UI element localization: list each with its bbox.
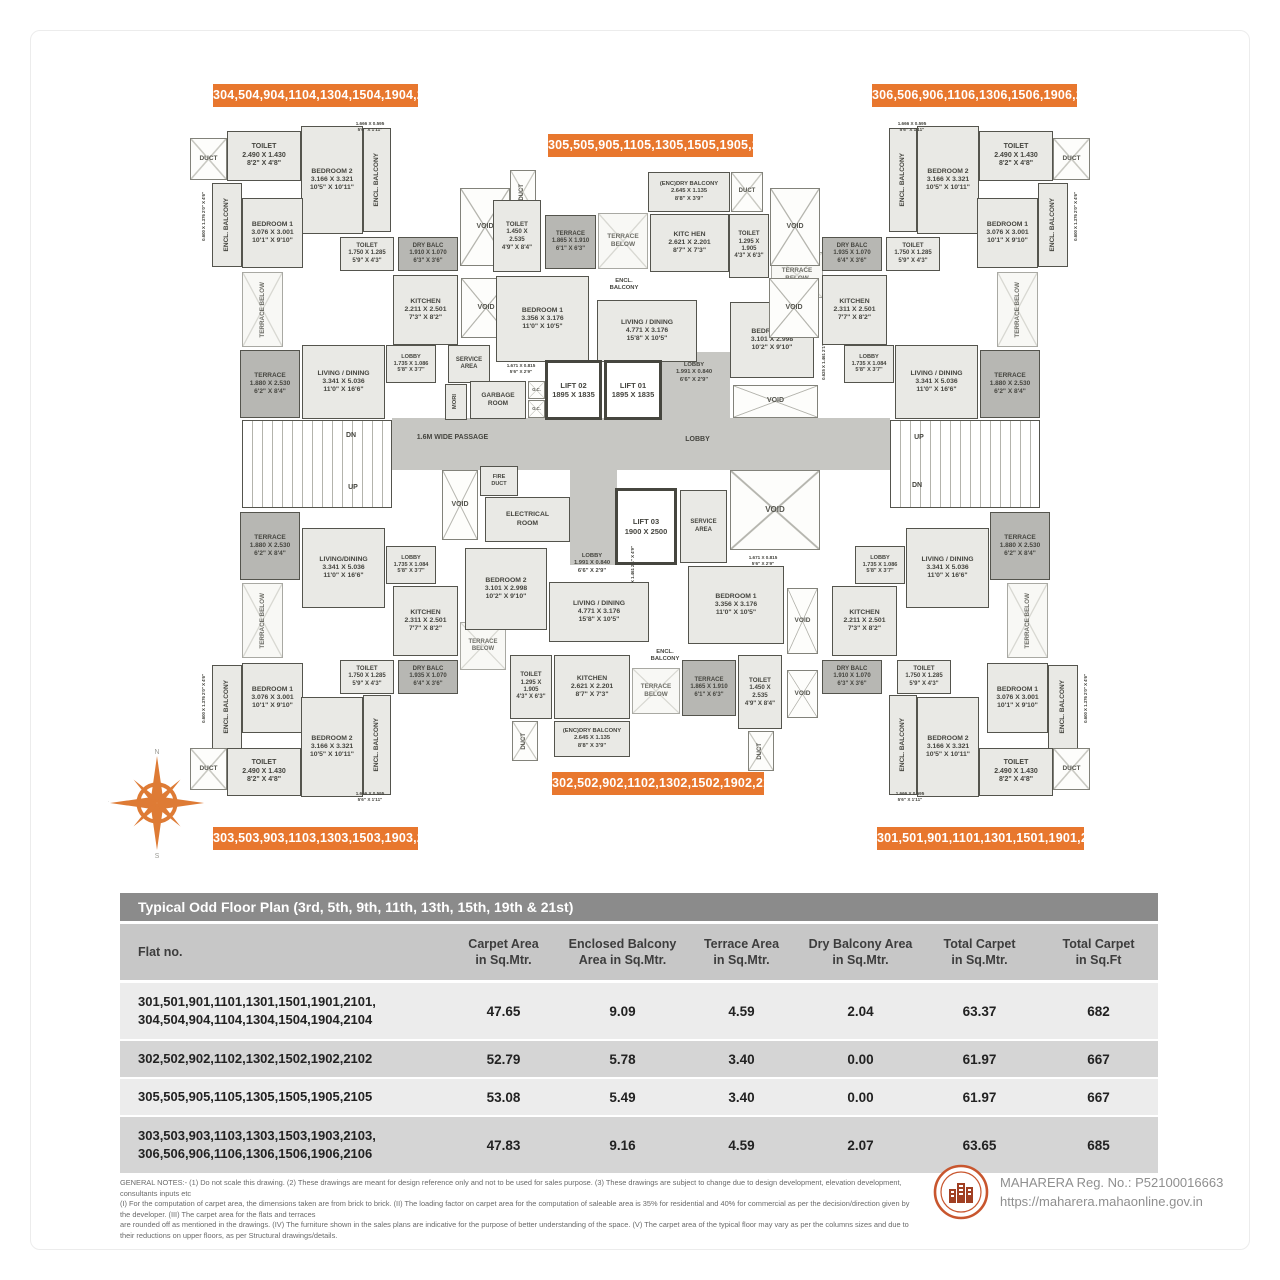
plan-room: DUCT <box>731 172 763 212</box>
maharera-seal-icon <box>932 1163 990 1221</box>
plan-room: BEDROOM 13.076 X 3.00110'1" X 9'10" <box>242 198 303 268</box>
plan-room: BEDROOM 23.166 X 3.32110'5" X 10'11" <box>301 126 363 234</box>
plan-room: LIVING / DINING3.341 X 5.03611'0" X 16'6… <box>906 528 989 608</box>
plan-room: TOILET2.490 X 1.4308'2" X 4'8" <box>979 748 1053 796</box>
plan-room: (ENC)DRY BALCONY2.645 X 1.1358'8" X 3'9" <box>554 721 630 757</box>
plan-room: TERRACE BELOW <box>242 272 283 347</box>
plan-room: TOILET1.750 X 1.2855'9" X 4'3" <box>340 237 394 271</box>
plan-room: KITCHEN2.211 X 2.5017'3" X 8'2" <box>832 586 897 656</box>
plan-room: ENCL. BALCONY <box>889 695 917 795</box>
plan-label: 1.6M WIDE PASSAGE <box>390 430 515 446</box>
plan-room: DUCT <box>748 731 774 771</box>
plan-room: BEDROOM 13.076 X 3.00110'1" X 9'10" <box>242 663 303 733</box>
note-line: (I) For the computation of carpet area, … <box>120 1199 915 1220</box>
area-value-cell: 9.16 <box>563 1117 682 1173</box>
area-value-cell: 4.59 <box>682 983 801 1039</box>
plan-room: ENCL. BALCONY <box>889 128 917 232</box>
flat-number-banner: 303,503,903,1103,1303,1503,1903,2103 <box>213 827 418 850</box>
plan-room: ENCL. BALCONY <box>1038 183 1068 267</box>
plan-room: ENCL. BALCONY <box>1048 665 1078 749</box>
area-value-cell: 3.40 <box>682 1079 801 1115</box>
plan-label: DN <box>338 430 364 443</box>
plan-room: ENCL. BALCONY <box>212 665 242 749</box>
plan-label: ENCL.BALCONY <box>600 274 648 296</box>
plan-room: BEDROOM 23.101 X 2.99810'2" X 9'10" <box>465 548 547 630</box>
area-value-cell: 61.97 <box>920 1079 1039 1115</box>
flat-number-banner: 305,505,905,1105,1305,1505,1905,2105 <box>548 134 753 157</box>
plan-room: LIFT 031900 X 2500 <box>615 488 677 565</box>
plan-label: LOBBY1.991 X 0.8406'6" X 2'9" <box>560 546 624 582</box>
table-row: 305,505,905,1105,1305,1505,1905,210553.0… <box>120 1079 1158 1115</box>
plan-room: FIREDUCT <box>480 466 518 496</box>
plan-room: VOID <box>770 188 820 266</box>
plan-room: VOID <box>769 278 819 338</box>
table-body: 301,501,901,1101,1301,1501,1901,2101,304… <box>120 983 1158 1173</box>
area-value-cell: 52.79 <box>444 1041 563 1077</box>
rera-url: https://maharera.mahaonline.gov.in <box>1000 1192 1223 1211</box>
plan-room: TERRACE1.880 X 2.5306'2" X 8'4" <box>980 350 1040 418</box>
area-value-cell: 0.00 <box>801 1041 920 1077</box>
area-value-cell: 667 <box>1039 1041 1158 1077</box>
plan-room: ENCL. BALCONY <box>363 695 391 795</box>
plan-room <box>242 420 392 508</box>
plan-room: MORI <box>445 384 467 420</box>
area-value-cell: 47.83 <box>444 1117 563 1173</box>
svg-text:S: S <box>155 853 160 858</box>
flat-number-banner: 306,506,906,1106,1306,1506,1906,2106 <box>872 84 1077 107</box>
area-value-cell: 682 <box>1039 983 1158 1039</box>
area-value-cell: 63.37 <box>920 983 1039 1039</box>
plan-room: LOBBY1.735 X 1.0845'8" X 3'7" <box>844 345 894 383</box>
plan-room: LIVING / DINING4.771 X 3.17615'8" X 10'5… <box>549 582 649 642</box>
table-row: 301,501,901,1101,1301,1501,1901,2101,304… <box>120 983 1158 1039</box>
plan-room: (ENC)DRY BALCONY2.645 X 1.1358'8" X 3'9" <box>648 172 730 212</box>
plan-room: TERRACE BELOW <box>1007 583 1048 658</box>
plan-room: TERRACE1.865 X 1.9106'1" X 6'3" <box>545 215 596 269</box>
area-value-cell: 9.09 <box>563 983 682 1039</box>
plan-room: TOILET1.750 X 1.2855'9" X 4'3" <box>340 660 394 694</box>
plan-label: UP <box>340 482 366 495</box>
plan-label: 0.600 X 1.376 2'0" X 4'6" <box>1078 667 1094 729</box>
plan-room: TERRACE1.880 X 2.5306'2" X 8'4" <box>990 512 1050 580</box>
area-value-cell: 667 <box>1039 1079 1158 1115</box>
plan-label: 1.666 X 0.5955'6" X 1'11" <box>344 120 396 134</box>
plan-label: DN <box>904 480 930 493</box>
plan-room: KITCHEN2.621 X 2.2018'7" X 7'3" <box>554 655 630 719</box>
plan-room: SERVICEAREA <box>448 345 490 383</box>
plan-room: BEDROOM 13.076 X 3.00110'1" X 9'10" <box>987 663 1048 733</box>
plan-room: ENCL. BALCONY <box>212 183 242 267</box>
plan-room: DUCT <box>1053 748 1090 790</box>
plan-room: DRY BALC1.935 X 1.0706'4" X 3'6" <box>822 237 882 271</box>
area-value-cell: 47.65 <box>444 983 563 1039</box>
flat-no-cell: 302,502,902,1102,1302,1502,1902,2102 <box>120 1041 444 1077</box>
note-line: are rounded off as mentioned in the draw… <box>120 1220 915 1241</box>
plan-room: TERRACEBELOW <box>598 213 648 269</box>
plan-room: TERRACE1.865 X 1.9106'1" X 6'3" <box>682 660 736 716</box>
plan-label: 0.600 X 1.376 2'0" X 4'6" <box>196 185 212 247</box>
plan-room: TERRACE BELOW <box>997 272 1038 347</box>
plan-room: BEDROOM 13.356 X 3.17611'0" X 10'5" <box>496 276 589 362</box>
plan-room: KITC HEN2.621 X 2.2018'7" X 7'3" <box>650 214 729 272</box>
plan-label: 0.600 X 1.376 2'0" X 4'6" <box>196 667 212 729</box>
plan-room: VOID <box>787 588 818 654</box>
flat-no-cell: 303,503,903,1103,1303,1503,1903,2103,306… <box>120 1117 444 1173</box>
area-value-cell: 2.04 <box>801 983 920 1039</box>
plan-room: ELECTRICALROOM <box>485 497 570 542</box>
plan-room: TERRACE BELOW <box>242 583 283 658</box>
plan-label: LOBBY <box>670 432 725 448</box>
plan-room: TERRACE1.880 X 2.5306'2" X 8'4" <box>240 350 300 418</box>
plan-room: LIVING / DINING3.341 X 5.03611'0" X 16'6… <box>895 345 978 419</box>
plan-room: LIVING / DINING3.341 X 5.03611'0" X 16'6… <box>302 345 385 419</box>
plan-room: LIFT 011895 X 1835 <box>604 360 662 420</box>
area-value-cell: 5.49 <box>563 1079 682 1115</box>
column-header: Flat no. <box>120 924 444 980</box>
area-table: Typical Odd Floor Plan (3rd, 5th, 9th, 1… <box>120 893 1158 1175</box>
column-header: Total Carpetin Sq.Ft <box>1039 924 1158 980</box>
flat-no-cell: 301,501,901,1101,1301,1501,1901,2101,304… <box>120 983 444 1039</box>
rera-footer: MAHARERA Reg. No.: P52100016663 https://… <box>932 1163 1223 1221</box>
plan-room: TOILET1.295 X1.9054'3" X 6'3" <box>510 655 552 719</box>
plan-label: 1.666 X 0.5955'6" X 1'11" <box>886 120 938 134</box>
plan-label: LOBBY1.991 X 0.8406'6" X 2'9" <box>660 355 728 391</box>
plan-room: BEDROOM 23.166 X 3.32110'5" X 10'11" <box>917 697 979 797</box>
plan-room: VOID <box>730 470 820 550</box>
plan-room: LOBBY1.735 X 1.0865'8" X 3'7" <box>386 345 436 383</box>
plan-label: 1.671 X 0.8155'6" X 2'9" <box>498 362 544 375</box>
flat-no-cell: 305,505,905,1105,1305,1505,1905,2105 <box>120 1079 444 1115</box>
plan-room: DRY BALC1.910 X 1.0706'3" X 3'6" <box>822 660 882 694</box>
plan-room: DRY BALC1.935 X 1.0706'4" X 3'6" <box>398 660 458 694</box>
plan-room: TERRACE1.880 X 2.5306'2" X 8'4" <box>240 512 300 580</box>
plan-room: VOID <box>442 470 478 540</box>
plan-room: TOILET1.750 X 1.2855'9" X 4'3" <box>886 237 940 271</box>
plan-room: LOBBY1.735 X 1.0845'8" X 3'7" <box>386 546 436 584</box>
plan-room: BEDROOM 23.166 X 3.32110'5" X 10'11" <box>301 697 363 797</box>
plan-room: KITCHEN2.311 X 2.5017'7" X 8'2" <box>393 586 458 656</box>
column-header: Terrace Areain Sq.Mtr. <box>682 924 801 980</box>
plan-label: 0.600 X 1.376 2'0" X 4'6" <box>1068 185 1084 247</box>
plan-room: TOILET2.490 X 1.4308'2" X 4'8" <box>979 131 1053 181</box>
column-header: Enclosed BalconyArea in Sq.Mtr. <box>563 924 682 980</box>
plan-room: KITCHEN2.311 X 2.5017'7" X 8'2" <box>822 275 887 345</box>
plan-room: BEDROOM 13.076 X 3.00110'1" X 9'10" <box>977 198 1038 268</box>
plan-room: LIVING / DINING4.771 X 3.17615'8" X 10'5… <box>597 300 697 362</box>
plan-room: LIFT 021895 X 1835 <box>545 360 602 420</box>
plan-label: 1.666 X 0.5955'6" X 1'11" <box>884 790 936 804</box>
plan-room: TOILET1.295 X1.9054'3" X 6'3" <box>729 214 769 278</box>
column-header: Dry Balcony Areain Sq.Mtr. <box>801 924 920 980</box>
svg-text:N: N <box>155 749 160 756</box>
column-header: Total Carpetin Sq.Mtr. <box>920 924 1039 980</box>
plan-label: 1.666 X 0.5955'6" X 1'11" <box>344 790 396 804</box>
area-value-cell: 4.59 <box>682 1117 801 1173</box>
note-line: GENERAL NOTES:- (1) Do not scale this dr… <box>120 1178 915 1199</box>
table-title: Typical Odd Floor Plan (3rd, 5th, 9th, 1… <box>120 893 1158 921</box>
general-notes: GENERAL NOTES:- (1) Do not scale this dr… <box>120 1178 915 1241</box>
brochure-page: N E S W DUCTTOILET2.490 X 1.4308'2" X 4'… <box>0 0 1280 1280</box>
plan-room: LIVING/DINING3.341 X 5.03611'0" X 16'6" <box>302 528 385 608</box>
plan-room: DUCT <box>190 748 227 790</box>
plan-room: SERVICEAREA <box>680 490 727 563</box>
svg-text:W: W <box>108 801 109 808</box>
plan-room: VOID <box>787 670 818 718</box>
area-value-cell: 61.97 <box>920 1041 1039 1077</box>
plan-room: KITCHEN2.211 X 2.5017'3" X 8'2" <box>393 275 458 345</box>
plan-room: TOILET2.490 X 1.4308'2" X 4'8" <box>227 131 301 181</box>
plan-room: TOILET2.490 X 1.4308'2" X 4'8" <box>227 748 301 796</box>
area-value-cell: 0.00 <box>801 1079 920 1115</box>
flat-number-banner: 302,502,902,1102,1302,1502,1902,2102 <box>552 772 764 795</box>
plan-room: G.C. <box>528 381 545 399</box>
plan-room: GARBAGEROOM <box>470 381 526 419</box>
area-value-cell: 53.08 <box>444 1079 563 1115</box>
plan-room: DUCT <box>1053 138 1090 180</box>
plan-label: UP <box>906 432 932 445</box>
rera-reg-no: MAHARERA Reg. No.: P52100016663 <box>1000 1173 1223 1192</box>
plan-room: DUCT <box>190 138 227 180</box>
plan-room: TOILET1.450 X2.5354'9" X 8'4" <box>738 655 782 729</box>
flat-number-banner: 301,501,901,1101,1301,1501,1901,2101 <box>877 827 1084 850</box>
area-value-cell: 5.78 <box>563 1041 682 1077</box>
plan-room: G.C. <box>528 400 545 418</box>
column-header: Carpet Areain Sq.Mtr. <box>444 924 563 980</box>
plan-room: TERRACEBELOW <box>632 668 680 714</box>
area-value-cell: 3.40 <box>682 1041 801 1077</box>
plan-room: DRY BALC1.910 X 1.0706'3" X 3'6" <box>398 237 458 271</box>
table-header-row: Flat no.Carpet Areain Sq.Mtr.Enclosed Ba… <box>120 924 1158 980</box>
plan-room: LOBBY1.735 X 1.0865'8" X 3'7" <box>855 546 905 584</box>
flat-number-banner: 304,504,904,1104,1304,1504,1904,2104 <box>213 84 418 107</box>
table-row: 302,502,902,1102,1302,1502,1902,210252.7… <box>120 1041 1158 1077</box>
plan-room: ENCL. BALCONY <box>363 128 391 232</box>
plan-room: VOID <box>733 385 818 418</box>
plan-room: BEDROOM 13.356 X 3.17611'0" X 10'5" <box>688 566 784 644</box>
plan-room: BEDROOM 23.166 X 3.32110'5" X 10'11" <box>917 126 979 234</box>
plan-room: TOILET1.450 X2.5354'9" X 8'4" <box>493 200 541 272</box>
plan-room: DUCT <box>512 721 538 761</box>
area-value-cell: 2.07 <box>801 1117 920 1173</box>
plan-room: TOILET1.750 X 1.2855'9" X 4'3" <box>897 660 951 694</box>
